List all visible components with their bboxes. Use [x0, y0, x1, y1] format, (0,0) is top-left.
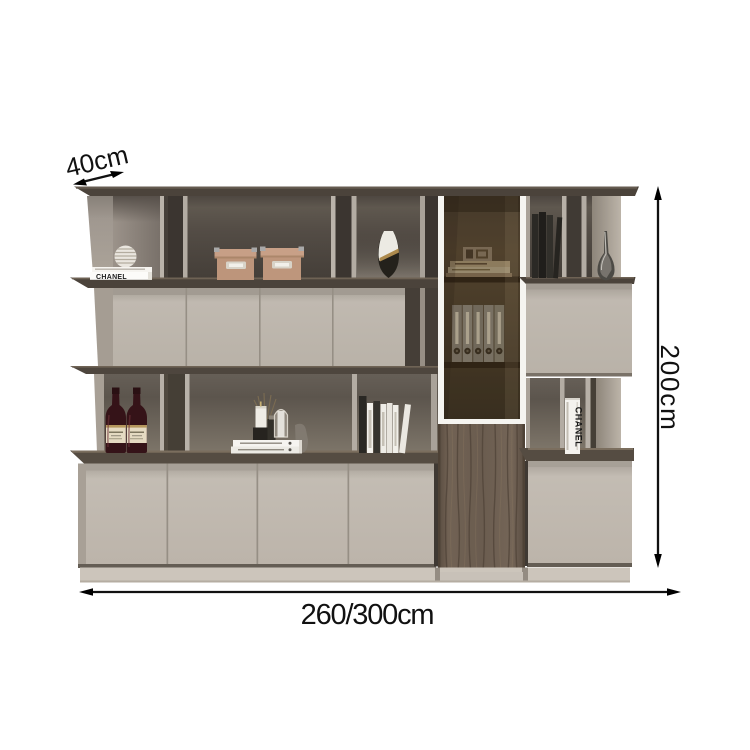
svg-text:CHANEL: CHANEL: [96, 274, 127, 281]
svg-text:CHANEL: CHANEL: [574, 407, 584, 448]
svg-text:260/300cm: 260/300cm: [301, 599, 434, 631]
svg-text:200cm: 200cm: [655, 344, 685, 431]
